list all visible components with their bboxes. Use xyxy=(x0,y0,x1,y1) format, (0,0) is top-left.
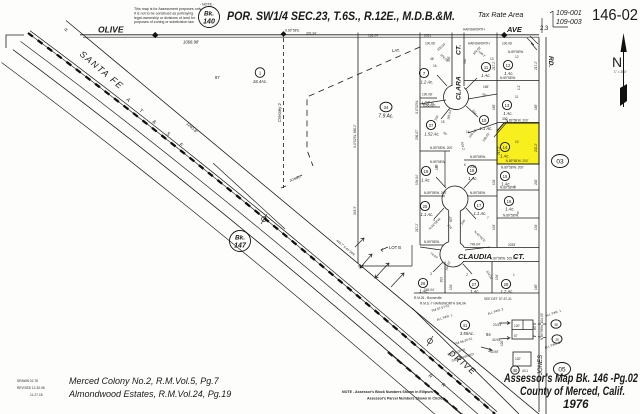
svg-text:N.89°58'W.: N.89°58'W. xyxy=(508,50,524,54)
svg-text:12: 12 xyxy=(515,55,519,59)
svg-text:Merced Colony No.2, R.M.Vol.5,: Merced Colony No.2, R.M.Vol.5, Pg.7 xyxy=(69,376,220,386)
svg-text:HAINSWORTH: HAINSWORTH xyxy=(468,42,490,46)
svg-text:CLARA: CLARA xyxy=(456,76,463,100)
svg-text:166.04': 166.04' xyxy=(368,34,379,38)
svg-text:27: 27 xyxy=(472,282,477,287)
svg-text:147: 147 xyxy=(234,243,247,250)
svg-text:N.89°58'W.: N.89°58'W. xyxy=(500,186,516,190)
svg-text:200': 200' xyxy=(534,179,538,185)
svg-text:1.1 Ac.: 1.1 Ac. xyxy=(474,211,487,216)
svg-text:217.2': 217.2' xyxy=(534,61,538,70)
svg-text:18.4Ac.: 18.4Ac. xyxy=(253,79,267,84)
svg-text:165': 165' xyxy=(534,104,538,110)
svg-text:236.07': 236.07' xyxy=(415,129,419,140)
svg-text:10: 10 xyxy=(515,140,519,144)
svg-text:100.08: 100.08 xyxy=(502,42,512,46)
svg-text:134': 134' xyxy=(495,274,499,280)
svg-text:R.M.26 - Bonneville: R.M.26 - Bonneville xyxy=(414,296,442,300)
svg-text:13: 13 xyxy=(505,103,510,108)
svg-text:N.89°58'W.: N.89°58'W. xyxy=(430,160,446,164)
svg-text:N.89°58'W.: N.89°58'W. xyxy=(500,76,516,80)
svg-text:N: N xyxy=(612,54,622,70)
svg-text:LOT B: LOT B xyxy=(389,245,401,250)
svg-text:HAINSWORTH: HAINSWORTH xyxy=(463,28,485,32)
svg-text:N.89°58'W. 200': N.89°58'W. 200' xyxy=(506,119,529,123)
svg-text:25: 25 xyxy=(423,204,428,209)
svg-text:1068.98': 1068.98' xyxy=(183,40,199,45)
svg-text:200': 200' xyxy=(470,165,476,169)
svg-text:N.89°58'W. 200': N.89°58'W. 200' xyxy=(506,159,529,163)
svg-text:N.89°58'W. 200': N.89°58'W. 200' xyxy=(424,191,447,195)
svg-text:1.1 Ac.: 1.1 Ac. xyxy=(421,212,434,217)
svg-text:17: 17 xyxy=(477,203,482,208)
svg-text:N.89°58'W.: N.89°58'W. xyxy=(470,155,486,159)
svg-text:1 Ac.: 1 Ac. xyxy=(481,73,490,78)
svg-text:S.89°58'E.: S.89°58'E. xyxy=(285,29,300,33)
svg-text:10: 10 xyxy=(482,118,487,123)
svg-text:15: 15 xyxy=(441,120,445,124)
svg-text:2: 2 xyxy=(466,273,468,277)
svg-text:134': 134' xyxy=(439,277,443,283)
svg-text:13: 13 xyxy=(490,57,494,61)
svg-text:CLAUDIA: CLAUDIA xyxy=(458,252,492,261)
svg-text:28: 28 xyxy=(504,282,509,287)
svg-text:109-001: 109-001 xyxy=(556,10,582,17)
svg-text:1.2 Ac.: 1.2 Ac. xyxy=(421,80,434,85)
svg-text:57: 57 xyxy=(514,334,518,338)
svg-text:134': 134' xyxy=(492,179,496,185)
svg-text:120': 120' xyxy=(515,357,521,361)
svg-text:7: 7 xyxy=(487,216,489,220)
svg-text:46': 46' xyxy=(430,57,435,61)
svg-text:(196.08'): (196.08') xyxy=(423,103,435,107)
svg-text:1 Ac.: 1 Ac. xyxy=(500,154,509,159)
svg-text:1976: 1976 xyxy=(563,399,589,411)
svg-text:3: 3 xyxy=(430,272,432,276)
svg-text:1 Ac.: 1 Ac. xyxy=(470,289,479,294)
svg-text:11: 11 xyxy=(484,65,489,70)
svg-text:S.0°02'W.: S.0°02'W. xyxy=(415,100,419,114)
svg-text:120': 120' xyxy=(500,340,504,346)
svg-text:41: 41 xyxy=(463,323,468,328)
svg-text:16: 16 xyxy=(507,199,512,204)
svg-text:38: 38 xyxy=(554,323,558,327)
svg-text:607': 607' xyxy=(449,216,453,222)
svg-text:202.2': 202.2' xyxy=(534,143,538,152)
svg-text:N.89°58'W. 200': N.89°58'W. 200' xyxy=(501,166,524,170)
svg-text:REVISED 12-30-96: REVISED 12-30-96 xyxy=(17,386,45,390)
svg-text:S.0°02'W. 660.2': S.0°02'W. 660.2' xyxy=(353,124,357,148)
svg-text:Assessor's Map Bk. 146 -Pg.02: Assessor's Map Bk. 146 -Pg.02 xyxy=(503,373,638,385)
svg-text:217.2': 217.2' xyxy=(415,223,419,232)
svg-text:134': 134' xyxy=(492,224,496,230)
svg-text:749.04': 749.04' xyxy=(424,288,435,292)
svg-text:217.2': 217.2' xyxy=(497,146,501,155)
svg-text:120': 120' xyxy=(514,324,520,328)
svg-text:15: 15 xyxy=(503,174,508,179)
svg-text:N.89°58'W.: N.89°58'W. xyxy=(470,191,486,195)
svg-text:134.04': 134.04' xyxy=(415,174,419,185)
svg-text:6: 6 xyxy=(464,163,466,167)
svg-text:11: 11 xyxy=(515,95,519,99)
svg-text:1 Ac.: 1 Ac. xyxy=(421,178,430,183)
svg-text:7.9 Ac.: 7.9 Ac. xyxy=(378,114,393,120)
svg-text:2031: 2031 xyxy=(424,34,431,38)
svg-text:N.89°58'W. 104.99': N.89°58'W. 104.99' xyxy=(540,312,544,340)
svg-text:Cressey 2: Cressey 2 xyxy=(277,102,282,122)
svg-text:134': 134' xyxy=(449,284,453,290)
svg-text:87: 87 xyxy=(215,75,220,80)
svg-text:1" = 200': 1" = 200' xyxy=(614,70,627,74)
svg-text:CT.: CT. xyxy=(456,44,463,55)
svg-text:94: 94 xyxy=(486,332,491,337)
svg-text:165': 165' xyxy=(492,104,496,110)
svg-text:140: 140 xyxy=(203,19,215,26)
svg-text:146-02: 146-02 xyxy=(592,7,638,24)
svg-text:217.2': 217.2' xyxy=(492,61,496,70)
svg-text:AVE: AVE xyxy=(506,25,523,34)
svg-text:100.08: 100.08 xyxy=(425,42,435,46)
svg-text:16: 16 xyxy=(433,64,437,68)
svg-text:N.89°58'W. 200': N.89°58'W. 200' xyxy=(430,146,453,150)
svg-text:109-003: 109-003 xyxy=(556,19,582,26)
svg-text:2.3: 2.3 xyxy=(540,26,549,32)
svg-text:OLIVE: OLIVE xyxy=(98,25,124,35)
svg-text:N.89°58'W. 515.74': N.89°58'W. 515.74' xyxy=(490,257,518,261)
svg-text:376.34': 376.34' xyxy=(306,31,317,35)
svg-text:1 Ac.: 1 Ac. xyxy=(503,111,512,116)
svg-text:3.55Ac.: 3.55Ac. xyxy=(460,331,474,336)
svg-text:165': 165' xyxy=(534,284,538,290)
svg-text:26: 26 xyxy=(421,281,426,286)
svg-text:1 Ac.: 1 Ac. xyxy=(505,207,514,212)
svg-text:1: 1 xyxy=(513,273,515,277)
svg-text:60': 60' xyxy=(533,325,537,330)
svg-text:County of Merced, Calif.: County of Merced, Calif. xyxy=(520,386,625,398)
svg-text:1.52 Ac.: 1.52 Ac. xyxy=(424,132,439,137)
svg-text:03: 03 xyxy=(556,159,564,166)
svg-text:1.2': 1.2' xyxy=(517,85,521,90)
svg-text:330': 330' xyxy=(502,117,508,121)
svg-text:SEE DET. 57-57-31: SEE DET. 57-57-31 xyxy=(484,297,512,301)
svg-text:11-27-18: 11-27-18 xyxy=(30,393,43,397)
svg-text:Bk.: Bk. xyxy=(204,11,214,18)
svg-text:12: 12 xyxy=(506,63,511,68)
svg-text:19: 19 xyxy=(424,169,429,174)
svg-text:DRAWN 02-78: DRAWN 02-78 xyxy=(17,379,38,383)
svg-text:23.93': 23.93' xyxy=(493,323,502,327)
svg-text:LAT.: LAT. xyxy=(392,48,400,53)
svg-text:POR. SW1/4 SEC.23, T.6S., R.12: POR. SW1/4 SEC.23, T.6S., R.12E., M.D.B.… xyxy=(227,9,455,23)
svg-text:343.3': 343.3' xyxy=(353,206,357,215)
svg-text:NOTE - Assessor's Block Numbe: NOTE - Assessor's Block Numbers Shown in… xyxy=(342,390,433,394)
svg-text:165': 165' xyxy=(483,85,489,89)
svg-text:330': 330' xyxy=(463,58,467,64)
svg-text:749.04': 749.04' xyxy=(470,243,481,247)
svg-text:14: 14 xyxy=(503,145,508,150)
svg-text:37: 37 xyxy=(429,123,434,128)
svg-text:RD.: RD. xyxy=(547,56,554,67)
svg-text:2035': 2035' xyxy=(508,243,516,247)
svg-text:1.2 Ac.: 1.2 Ac. xyxy=(501,289,514,294)
svg-text:34: 34 xyxy=(384,105,389,110)
svg-text:165': 165' xyxy=(435,164,439,170)
svg-text:134': 134' xyxy=(534,224,538,230)
svg-text:Bk.: Bk. xyxy=(235,235,245,242)
svg-text:Almondwood Estates, R.M.Vol.24: Almondwood Estates, R.M.Vol.24, Pg.19 xyxy=(68,389,231,399)
svg-text:N.89°58'W.: N.89°58'W. xyxy=(503,214,519,218)
svg-text:N.89°58'W.: N.89°58'W. xyxy=(424,240,440,244)
svg-text:190.08': 190.08' xyxy=(422,93,433,97)
svg-text:Assessor's Parcel Numbers Show: Assessor's Parcel Numbers Shown in Circl… xyxy=(367,397,444,401)
svg-text:Tax Rate Area: Tax Rate Area xyxy=(478,10,523,19)
